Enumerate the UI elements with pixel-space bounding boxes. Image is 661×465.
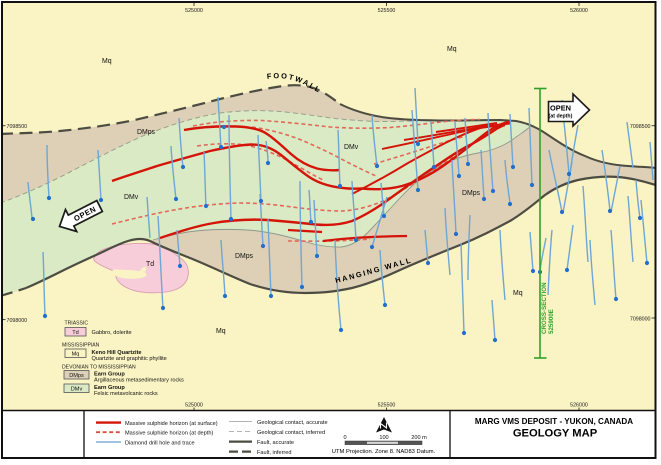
svg-text:CROSS-SECTION: CROSS-SECTION <box>541 282 548 334</box>
svg-text:525000: 525000 <box>185 403 203 409</box>
svg-text:DMps: DMps <box>137 129 156 136</box>
svg-text:DMps: DMps <box>462 190 481 197</box>
svg-text:Massive sulphide horizon (at s: Massive sulphide horizon (at surface) <box>125 421 218 427</box>
svg-text:Fault, accurate: Fault, accurate <box>257 440 294 446</box>
svg-text:MISSISSIPPIAN: MISSISSIPPIAN <box>62 343 100 349</box>
svg-text:MARG VMS DEPOSIT - YUKON, CANA: MARG VMS DEPOSIT - YUKON, CANADA <box>475 417 633 426</box>
svg-text:DMps: DMps <box>69 373 84 379</box>
svg-text:DMv: DMv <box>124 194 139 201</box>
svg-text:DMv: DMv <box>71 387 83 393</box>
svg-text:DMv: DMv <box>344 144 359 151</box>
svg-text:Mq: Mq <box>216 328 226 335</box>
svg-text:0: 0 <box>343 435 346 441</box>
svg-text:OPEN: OPEN <box>550 104 571 113</box>
svg-text:Felsic metavolcanic rocks: Felsic metavolcanic rocks <box>94 391 158 397</box>
svg-text:Td: Td <box>146 261 154 268</box>
svg-text:200 m: 200 m <box>411 435 427 441</box>
svg-text:TRIASSIC: TRIASSIC <box>65 321 89 327</box>
svg-text:525900E: 525900E <box>548 309 555 334</box>
svg-text:Td: Td <box>72 330 79 336</box>
svg-text:Geological contact, accurate: Geological contact, accurate <box>257 420 328 426</box>
svg-text:(at depth): (at depth) <box>549 114 573 120</box>
svg-text:Argillaceous metasedimentary r: Argillaceous metasedimentary rocks <box>94 378 184 384</box>
svg-text:525500: 525500 <box>378 8 396 14</box>
svg-text:Quartzite and graphitic phylli: Quartzite and graphitic phyllite <box>92 356 167 362</box>
svg-text:Geological contact, inferred: Geological contact, inferred <box>257 430 325 436</box>
svg-text:Massive sulphide horizon (at d: Massive sulphide horizon (at depth) <box>125 431 213 437</box>
svg-text:7098000: 7098000 <box>630 317 651 323</box>
svg-text:7098500: 7098500 <box>630 124 651 130</box>
svg-text:7098500: 7098500 <box>7 124 28 130</box>
svg-text:DMps: DMps <box>235 253 254 260</box>
svg-text:Fault, inferred: Fault, inferred <box>257 450 292 456</box>
svg-text:526000: 526000 <box>570 8 588 14</box>
svg-text:526000: 526000 <box>570 403 588 409</box>
svg-text:Gabbro, dolerite: Gabbro, dolerite <box>92 330 132 336</box>
svg-text:DEVONIAN TO MISSISSIPPIAN: DEVONIAN TO MISSISSIPPIAN <box>62 365 136 371</box>
svg-text:UTM Projection. Zone 8. NAD83: UTM Projection. Zone 8. NAD83 Datum. <box>332 449 436 455</box>
svg-text:Diamond drill hole and trace: Diamond drill hole and trace <box>125 440 195 446</box>
svg-text:100: 100 <box>379 435 388 441</box>
svg-text:Mq: Mq <box>72 352 80 358</box>
svg-text:GEOLOGY MAP: GEOLOGY MAP <box>513 428 598 440</box>
svg-text:Mq: Mq <box>513 290 523 297</box>
svg-text:525000: 525000 <box>185 8 203 14</box>
svg-text:7098000: 7098000 <box>7 318 28 324</box>
svg-text:525500: 525500 <box>378 403 396 409</box>
svg-text:Mq: Mq <box>102 58 112 65</box>
svg-text:Mq: Mq <box>447 46 457 53</box>
